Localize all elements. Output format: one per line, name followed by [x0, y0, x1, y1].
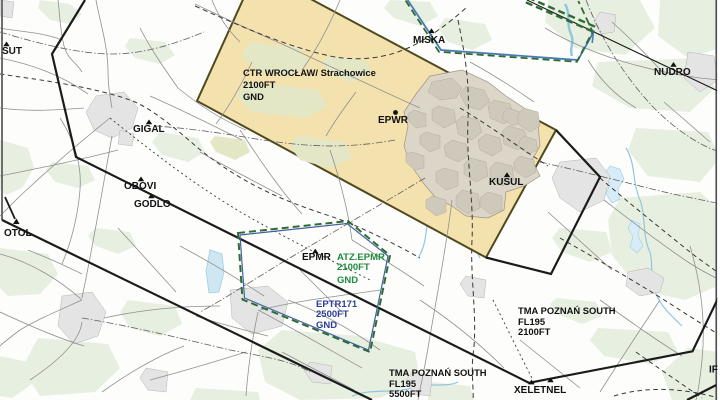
svg-text:GND: GND: [337, 275, 358, 286]
svg-text:GND: GND: [243, 91, 264, 102]
svg-text:OBOVI: OBOVI: [124, 181, 156, 192]
svg-text:GND: GND: [316, 320, 337, 331]
svg-text:KUSUL: KUSUL: [489, 177, 523, 188]
svg-text:EPMR: EPMR: [302, 252, 332, 263]
svg-text:MISKA: MISKA: [413, 35, 445, 46]
svg-text:NUDRO: NUDRO: [654, 67, 691, 78]
svg-text:2100FT: 2100FT: [337, 262, 370, 273]
svg-text:GIGAL: GIGAL: [133, 124, 165, 135]
svg-text:2100FT: 2100FT: [518, 326, 551, 337]
svg-text:SUT: SUT: [2, 46, 22, 57]
svg-text:2100FT: 2100FT: [243, 79, 276, 90]
svg-text:TMA POZNAŃ SOUTH: TMA POZNAŃ SOUTH: [518, 305, 616, 316]
svg-text:TMA POZNAŃ SOUTH: TMA POZNAŃ SOUTH: [389, 367, 487, 378]
svg-text:EPWR: EPWR: [378, 115, 409, 126]
svg-text:CTR WROCŁAW/ Strachowice: CTR WROCŁAW/ Strachowice: [243, 67, 376, 78]
svg-text:5500FT: 5500FT: [389, 388, 422, 399]
svg-text:XELETNEL: XELETNEL: [514, 385, 566, 396]
svg-text:IF: IF: [709, 365, 718, 376]
svg-text:OTOL: OTOL: [4, 228, 32, 239]
svg-text:GODLO: GODLO: [134, 199, 171, 210]
svg-text:2500FT: 2500FT: [316, 309, 349, 320]
